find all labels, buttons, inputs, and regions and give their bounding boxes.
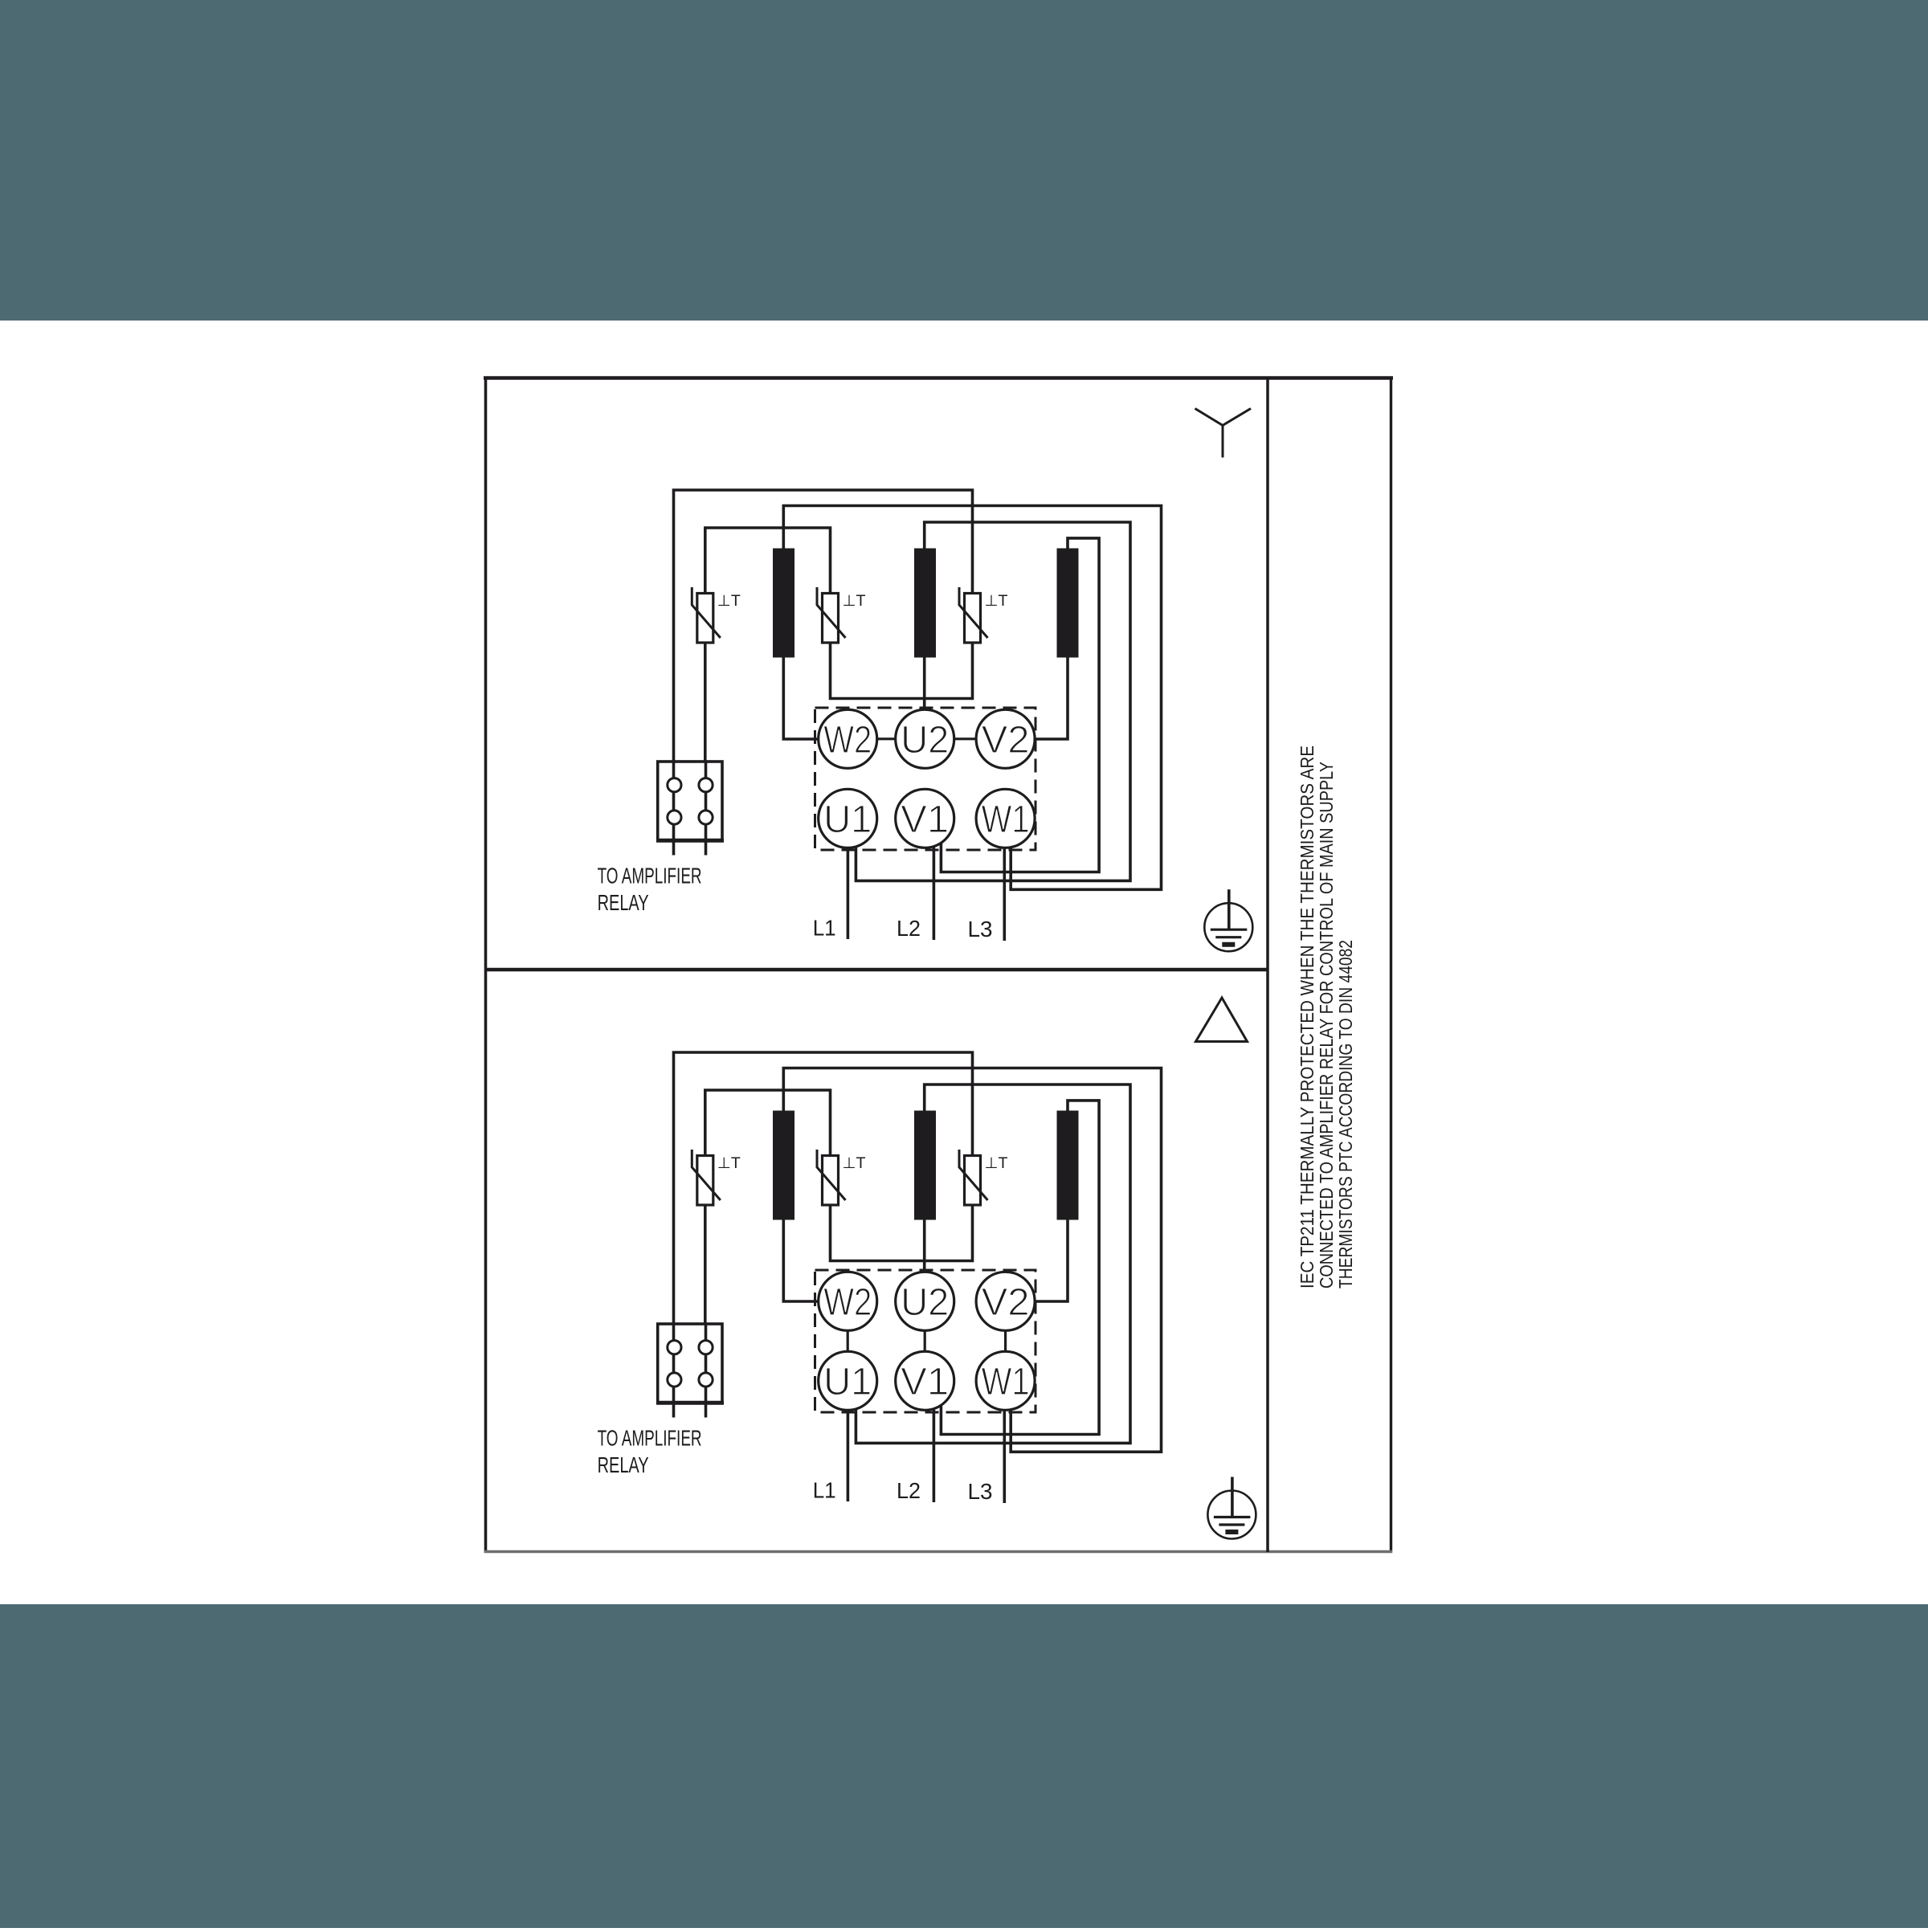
svg-text:W1: W1 [982, 799, 1030, 841]
svg-text:U1: U1 [823, 799, 872, 841]
svg-text:W2: W2 [823, 719, 872, 762]
svg-text:⊥T: ⊥T [717, 1155, 741, 1172]
svg-text:CONNECTED TO AMPLIFIER RELAY F: CONNECTED TO AMPLIFIER RELAY FOR CONTROL… [1316, 762, 1337, 1289]
svg-text:L1: L1 [813, 915, 836, 940]
svg-text:TO AMPLIFIER: TO AMPLIFIER [598, 863, 702, 888]
svg-text:L2: L2 [897, 916, 921, 941]
svg-text:⊥T: ⊥T [843, 593, 866, 610]
svg-text:U1: U1 [823, 1361, 872, 1403]
svg-text:V1: V1 [901, 1361, 949, 1403]
svg-text:W2: W2 [823, 1281, 872, 1324]
svg-text:IEC TP211 THERMALLY PROTECTED: IEC TP211 THERMALLY PROTECTED WHEN THE T… [1297, 745, 1317, 1289]
svg-text:W1: W1 [982, 1361, 1030, 1403]
svg-text:U2: U2 [901, 719, 949, 762]
svg-text:V2: V2 [982, 1281, 1030, 1324]
svg-text:⊥T: ⊥T [985, 593, 1008, 610]
svg-text:V1: V1 [901, 799, 949, 841]
svg-text:THERMISTORS PTC ACCORDING TO D: THERMISTORS PTC ACCORDING TO DIN 44082 [1335, 940, 1356, 1289]
svg-text:L1: L1 [813, 1477, 836, 1502]
svg-text:⊥T: ⊥T [985, 1155, 1008, 1172]
svg-text:U2: U2 [901, 1281, 949, 1324]
svg-text:⊥T: ⊥T [843, 1155, 866, 1172]
svg-text:RELAY: RELAY [598, 1452, 649, 1477]
svg-text:RELAY: RELAY [598, 890, 649, 915]
svg-text:TO AMPLIFIER: TO AMPLIFIER [598, 1425, 702, 1450]
svg-text:V2: V2 [982, 719, 1030, 762]
svg-text:⊥T: ⊥T [717, 593, 741, 610]
svg-text:L3: L3 [968, 917, 993, 941]
svg-text:L2: L2 [897, 1478, 921, 1503]
svg-text:L3: L3 [968, 1479, 993, 1504]
